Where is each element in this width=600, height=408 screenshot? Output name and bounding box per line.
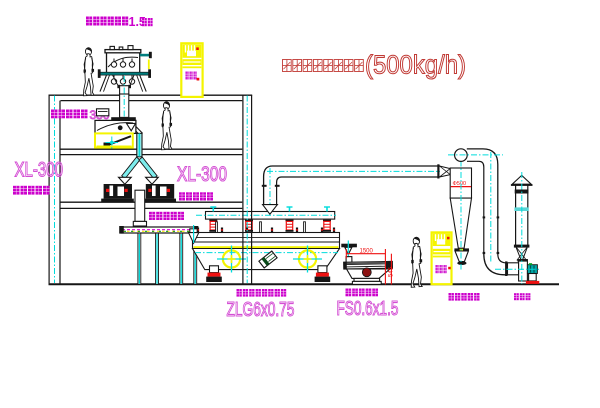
svg-text:FS0.6x1.5: FS0.6x1.5 — [337, 296, 399, 320]
svg-text:(500kg/h): (500kg/h) — [365, 51, 466, 80]
svg-text:ZLG6x0.75: ZLG6x0.75 — [227, 297, 295, 320]
svg-text:545: 545 — [388, 266, 394, 277]
svg-text:XL-300: XL-300 — [15, 157, 63, 181]
svg-text:XL-300: XL-300 — [177, 162, 227, 186]
svg-text:1500: 1500 — [360, 249, 374, 255]
svg-text:Φ500: Φ500 — [453, 181, 467, 187]
